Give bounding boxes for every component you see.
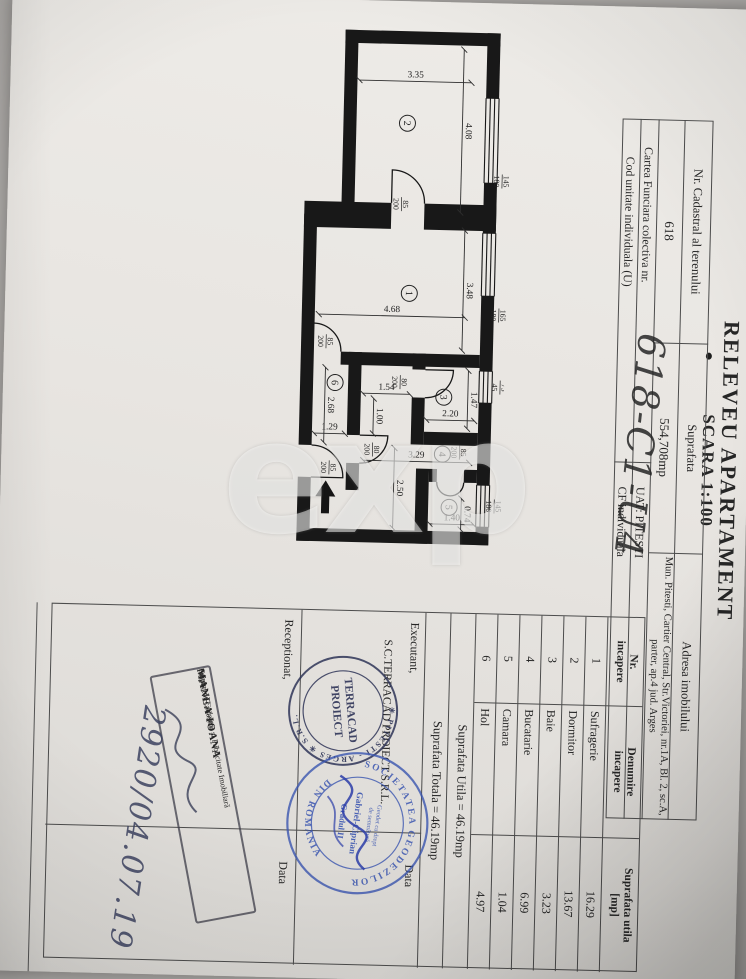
room-table-cell: 5 — [496, 614, 520, 703]
dim-label: 3.35 — [407, 70, 424, 80]
room-table-cell: 2 — [562, 616, 586, 705]
wall — [479, 296, 494, 371]
size-label-bottom: 200 — [315, 335, 324, 347]
room-table-cell: 1 — [584, 616, 608, 705]
wall — [423, 203, 496, 231]
svg-text:DIN ROMANIA: DIN ROMANIA — [296, 774, 332, 861]
room-table-cell: 4 — [518, 615, 542, 704]
size-label-bottom: 200 — [391, 198, 400, 210]
room-table-cell: Bucatarie — [515, 709, 540, 830]
room-number: 1 — [402, 290, 413, 295]
room-table-cell: Hol — [471, 708, 496, 829]
wall — [341, 29, 359, 214]
dim-tick — [465, 367, 471, 373]
terracad-center-2: PROIECT — [328, 684, 344, 738]
wall — [345, 29, 500, 46]
executant-label: Executant, — [406, 622, 422, 673]
size-label-bottom: 180 — [488, 309, 497, 321]
window-hatch — [484, 98, 486, 183]
geodez-ring-bottom: DIN ROMANIA — [296, 774, 332, 861]
window-hatch — [497, 98, 499, 183]
window-hatch — [492, 98, 494, 183]
wall — [412, 353, 425, 369]
dim-tick — [322, 364, 328, 370]
room-table-cell: Baie — [537, 709, 562, 830]
room-number: 6 — [328, 379, 339, 384]
room-table-cell: 16.29 — [577, 836, 602, 971]
room-table-cell: Sufragerie — [581, 710, 606, 831]
window-hatch — [488, 98, 490, 183]
adresa-line2: parter, ap.4 jud. Arges — [646, 639, 659, 733]
dim-tick — [461, 46, 467, 52]
bottom-extra-line — [27, 602, 37, 971]
room-number: 2 — [401, 120, 412, 125]
dim-label: 4.68 — [383, 304, 400, 314]
room-table-cell: 6 — [474, 614, 498, 703]
size-label-bottom: 180 — [491, 175, 500, 187]
dim-label: 3.48 — [463, 282, 473, 299]
window-hatch — [485, 233, 487, 296]
room-table-cell: 6.99 — [511, 835, 536, 970]
room-table-rows: 1Sufragerie16.292Dormitor13.673Baie3.234… — [467, 614, 644, 973]
dim-tick — [315, 311, 321, 317]
room-table-cell: 3.23 — [533, 835, 558, 970]
geodez-stamp: SOCIETATEA GEODEZILOR DIN ROMANIA Geodet… — [273, 739, 441, 907]
room-table-cell: 13.67 — [555, 836, 580, 971]
room-table-cell: Dormitor — [559, 710, 584, 831]
window-hatch — [481, 233, 483, 296]
room-table-cell: 1.04 — [489, 834, 514, 969]
room-table-cell: 3 — [540, 615, 564, 704]
dim-tick — [458, 347, 464, 353]
window-hatch — [494, 233, 496, 296]
dim-label: 4.08 — [462, 122, 472, 139]
photo-frame: RELEVEU APARTAMENT SCARA 1:100 Nr. Cadas… — [0, 0, 746, 979]
window-hatch — [489, 233, 491, 296]
room-table-cell: Camara — [493, 708, 518, 829]
exp-watermark: exp — [222, 386, 526, 570]
room-table-cell: 4.97 — [467, 833, 492, 968]
